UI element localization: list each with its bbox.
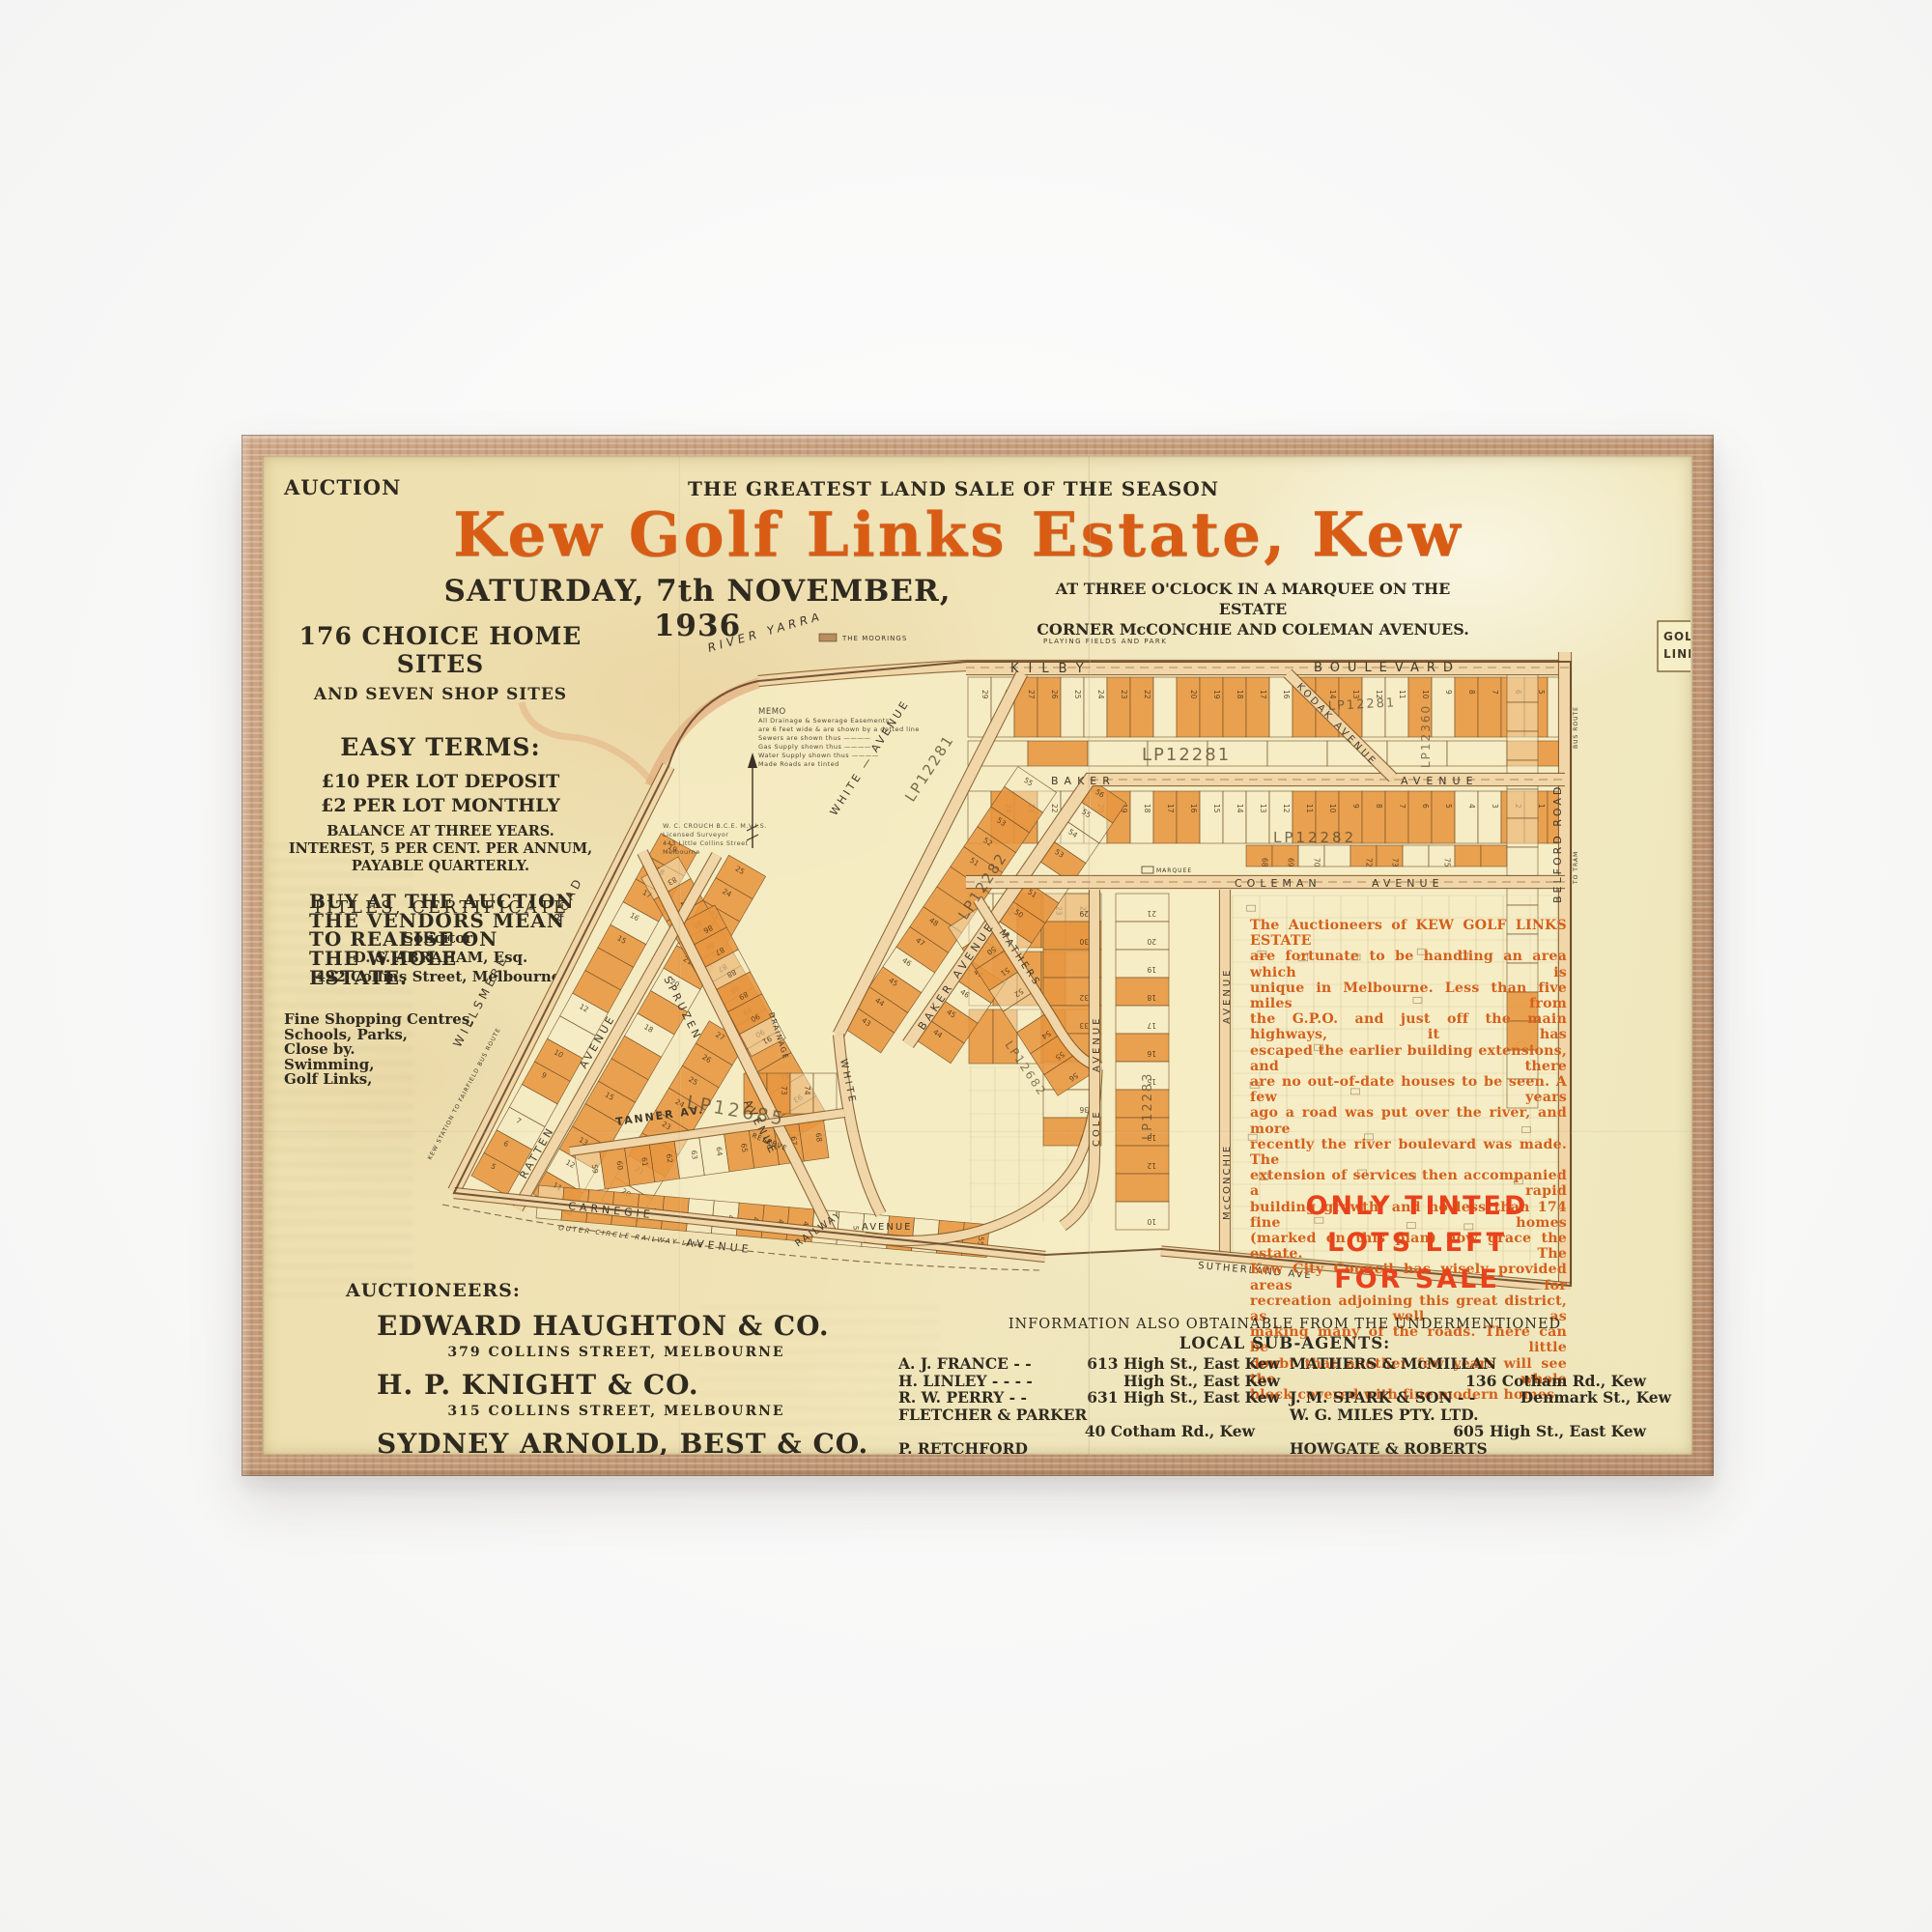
memo-line: Water Supply shown thus ————: [758, 752, 879, 759]
svg-text:12: 12: [1147, 1161, 1156, 1170]
agent-name: A. J. FRANCE - -: [898, 1355, 1032, 1373]
svg-text:7: 7: [1398, 804, 1406, 809]
svg-text:6: 6: [1421, 804, 1430, 809]
svg-text:22: 22: [1143, 690, 1151, 699]
sub-agents-block: INFORMATION ALSO OBTAINABLE FROM THE UND…: [898, 1317, 1671, 1455]
svg-text:5: 5: [1444, 804, 1453, 809]
svg-text:25: 25: [1073, 690, 1082, 699]
svg-text:13: 13: [1259, 804, 1267, 813]
auction-label: AUCTION: [284, 475, 401, 499]
note-line: unique in Melbourne. Less than five mile…: [1250, 980, 1567, 1011]
area-label-playing-fields: PLAYING FIELDS AND PARK: [1043, 638, 1167, 645]
auctioneer-firms: EDWARD HAUGHTON & CO.379 COLLINS STREET,…: [346, 1310, 945, 1455]
svg-text:20: 20: [1189, 690, 1198, 699]
svg-text:20: 20: [1147, 937, 1156, 946]
svg-text:7: 7: [1491, 690, 1499, 695]
agent-name: MATHERS & McMILLAN: [1290, 1355, 1671, 1373]
svg-text:9: 9: [1444, 690, 1453, 695]
surveyor-line: W. C. CROUCH B.C.E. M.V.I.S.: [663, 822, 767, 830]
plan-number: LP12281: [1142, 745, 1231, 765]
svg-text:19: 19: [1147, 965, 1156, 974]
svg-text:63: 63: [690, 1150, 699, 1160]
svg-text:70: 70: [1313, 858, 1321, 867]
svg-text:14: 14: [1328, 690, 1337, 699]
auctioneer-firm-address: 315 COLLINS STREET, MELBOURNE: [346, 1404, 887, 1419]
note-line: ago a road was put over the river, and m…: [1250, 1105, 1567, 1136]
agent-entry: J. M. SPARK & SON - -Denmark St., Kew: [1290, 1389, 1671, 1406]
agents-left-column: A. J. FRANCE - -613 High St., East KewH.…: [898, 1355, 1280, 1455]
street-label-mcconchie: McCONCHIE: [1222, 1145, 1233, 1220]
street-label-belford: BELFORD ROAD: [1551, 784, 1564, 903]
memo-line: All Drainage & Sewerage Easements: [758, 717, 890, 724]
svg-text:11: 11: [1398, 690, 1406, 699]
street-label-kilby: KILBY: [1010, 662, 1094, 676]
street-label-railway: AVENUE: [862, 1222, 912, 1233]
street-label-mcconchie: AVENUE: [1222, 968, 1233, 1024]
svg-text:64: 64: [715, 1147, 724, 1157]
svg-text:14: 14: [1236, 804, 1244, 813]
street-label-baker: AVENUE: [1401, 775, 1479, 787]
svg-text:65: 65: [739, 1143, 749, 1153]
svg-text:17: 17: [1259, 690, 1267, 699]
memo-line: are 6 feet wide & are shown by a dotted …: [758, 725, 920, 733]
agents-heading: LOCAL SUB-AGENTS:: [898, 1334, 1671, 1352]
svg-text:72: 72: [1365, 858, 1374, 867]
svg-text:29: 29: [980, 690, 989, 699]
svg-text:16: 16: [1282, 690, 1291, 699]
tinted-lots-sale-note: ONLY TINTED LOTS LEFT FOR SALE: [1258, 1188, 1577, 1298]
area-label-river-yarra: RIVER YARRA: [706, 613, 824, 655]
svg-text:4: 4: [1467, 804, 1476, 809]
plan-number: LP12282: [1273, 829, 1356, 846]
sale-note-line-2: FOR SALE: [1258, 1262, 1577, 1298]
agent-name: HOWGATE & ROBERTS: [1290, 1440, 1671, 1456]
street-label-kilby: BOULEVARD: [1314, 661, 1461, 675]
area-label-marquee: MARQUEE: [1156, 867, 1192, 874]
area-label-moorings: THE MOORINGS: [841, 635, 907, 642]
surveyor-line: 443 Little Collins Street: [663, 839, 749, 847]
street-label-coleman: AVENUE: [1372, 877, 1444, 890]
auctioneer-firm-name: H. P. KNIGHT & CO.: [346, 1369, 945, 1401]
memo-line: Gas Supply shown thus ————: [758, 743, 871, 751]
svg-text:61: 61: [639, 1156, 649, 1167]
svg-text:12: 12: [1282, 804, 1291, 813]
agent-address: High St., East Kew: [1123, 1373, 1280, 1390]
memo-line: Sewers are shown thus ————: [758, 734, 870, 742]
svg-text:23: 23: [1120, 690, 1128, 699]
svg-text:24: 24: [1096, 690, 1105, 699]
svg-text:10: 10: [1147, 1217, 1156, 1226]
auctioneer-firm-name: SYDNEY ARNOLD, BEST & CO.: [346, 1428, 945, 1455]
note-line: recently the river boulevard was made. T…: [1250, 1137, 1567, 1168]
memo-line: MEMO: [758, 707, 786, 717]
auctioneers-heading: AUCTIONEERS:: [346, 1280, 945, 1301]
svg-text:16: 16: [1189, 804, 1198, 813]
svg-text:18: 18: [1143, 804, 1151, 813]
agent-entry: A. J. FRANCE - -613 High St., East Kew: [898, 1355, 1280, 1373]
svg-text:17: 17: [1147, 1021, 1156, 1030]
street-label-willsmere: WILLSMERE: [450, 952, 510, 1049]
street-label-willsmere: ROAD: [551, 874, 585, 924]
agent-address: 613 High St., East Kew: [1087, 1355, 1280, 1373]
agent-address: 605 High St., East Kew: [1290, 1423, 1671, 1440]
street-label-cole: COLE: [1092, 1109, 1102, 1147]
area-label-bus-route: BUS ROUTE: [1573, 706, 1579, 749]
sale-note-line-1: ONLY TINTED LOTS LEFT: [1258, 1188, 1577, 1262]
svg-text:16: 16: [1147, 1049, 1156, 1058]
svg-text:8: 8: [1467, 690, 1476, 695]
svg-text:26: 26: [1050, 690, 1059, 699]
area-label-to-tram: TO TRAM: [1573, 851, 1579, 885]
svg-text:68: 68: [814, 1132, 824, 1143]
street-label-baker: BAKER: [1051, 775, 1116, 787]
svg-text:29: 29: [1079, 909, 1089, 918]
poster: AUCTION THE GREATEST LAND SALE OF THE SE…: [263, 456, 1692, 1455]
svg-text:17: 17: [1166, 804, 1175, 813]
agent-name: J. M. SPARK & SON - -: [1290, 1389, 1475, 1406]
svg-text:22: 22: [1050, 804, 1059, 813]
agent-address: 136 Cotham Rd., Kew: [1290, 1373, 1671, 1390]
auctioneer-firm-name: EDWARD HAUGHTON & CO.: [346, 1310, 945, 1342]
street-label-coleman: COLEMAN: [1235, 877, 1321, 890]
svg-text:3: 3: [1491, 804, 1499, 809]
svg-text:30: 30: [1079, 937, 1089, 946]
agent-name: W. G. MILES PTY. LTD.: [1290, 1406, 1671, 1424]
svg-text:15: 15: [1212, 804, 1221, 813]
agents-right-column: MATHERS & McMILLAN136 Cotham Rd., KewJ. …: [1290, 1355, 1671, 1455]
svg-text:36: 36: [1079, 1105, 1089, 1114]
svg-text:33: 33: [1079, 1021, 1089, 1030]
svg-text:62: 62: [665, 1153, 674, 1164]
svg-text:19: 19: [1212, 690, 1221, 699]
area-label-golf-links: GOLF: [1663, 630, 1690, 643]
svg-text:9: 9: [1351, 804, 1360, 809]
svg-text:73: 73: [780, 1086, 788, 1095]
auctioneers-block: AUCTIONEERS: EDWARD HAUGHTON & CO.379 CO…: [346, 1280, 945, 1455]
agent-name: P. RETCHFORD: [898, 1440, 1280, 1456]
svg-text:68: 68: [1261, 858, 1269, 867]
svg-text:11: 11: [1305, 804, 1314, 813]
note-line: are fortunate to be handling an area whi…: [1250, 949, 1567, 980]
agent-address: 40 Cotham Rd., Kew: [898, 1423, 1280, 1440]
agents-info-line: INFORMATION ALSO OBTAINABLE FROM THE UND…: [898, 1317, 1671, 1332]
agent-name: H. LINLEY - - - -: [898, 1373, 1033, 1390]
svg-text:74: 74: [803, 1086, 811, 1095]
tagline: THE GREATEST LAND SALE OF THE SEASON: [678, 477, 1229, 500]
svg-text:75: 75: [1443, 858, 1452, 867]
auctioneer-firm-address: 379 COLLINS STREET, MELBOURNE: [346, 1345, 887, 1360]
plan-number: LP12283: [1141, 1072, 1155, 1140]
agent-address: Denmark St., Kew: [1520, 1389, 1671, 1406]
surveyor-line: Melbourne: [663, 848, 700, 856]
scene: AUCTION THE GREATEST LAND SALE OF THE SE…: [0, 0, 1932, 1932]
agent-entry: H. LINLEY - - - -High St., East Kew: [898, 1373, 1280, 1390]
svg-text:8: 8: [1375, 804, 1383, 809]
svg-text:21: 21: [1147, 909, 1156, 918]
svg-text:27: 27: [1027, 690, 1036, 699]
agent-name: FLETCHER & PARKER: [898, 1406, 1280, 1424]
svg-text:10: 10: [1328, 804, 1337, 813]
agent-address: 631 High St., East Kew: [1087, 1389, 1280, 1406]
note-line: are no out-of-date houses to be seen. A …: [1250, 1074, 1567, 1105]
poster-title: Kew Golf Links Estate, Kew: [369, 498, 1548, 570]
svg-text:18: 18: [1147, 993, 1156, 1002]
area-label-golf-links: LINKS: [1663, 647, 1690, 661]
agent-entry: R. W. PERRY - -631 High St., East Kew: [898, 1389, 1280, 1406]
svg-text:32: 32: [1079, 993, 1089, 1002]
memo-line: Made Roads are tinted: [758, 760, 839, 768]
svg-text:73: 73: [1391, 858, 1400, 867]
picture-frame: AUCTION THE GREATEST LAND SALE OF THE SE…: [241, 435, 1714, 1476]
note-line: the G.P.O. and just off the main highway…: [1250, 1011, 1567, 1042]
plan-number: LP12360: [1419, 704, 1433, 768]
note-line: escaped the earlier building extensions,…: [1250, 1043, 1567, 1074]
note-line: The Auctioneers of KEW GOLF LINKS ESTATE: [1250, 918, 1567, 949]
svg-text:69: 69: [1287, 858, 1295, 867]
svg-text:18: 18: [1236, 690, 1244, 699]
surveyor-line: Licensed Surveyor: [663, 831, 728, 838]
svg-text:60: 60: [615, 1160, 625, 1171]
svg-text:10: 10: [1421, 690, 1430, 699]
svg-text:59: 59: [590, 1164, 600, 1175]
agent-name: R. W. PERRY - -: [898, 1389, 1027, 1406]
street-label-cole: AVENUE: [1092, 1016, 1102, 1072]
